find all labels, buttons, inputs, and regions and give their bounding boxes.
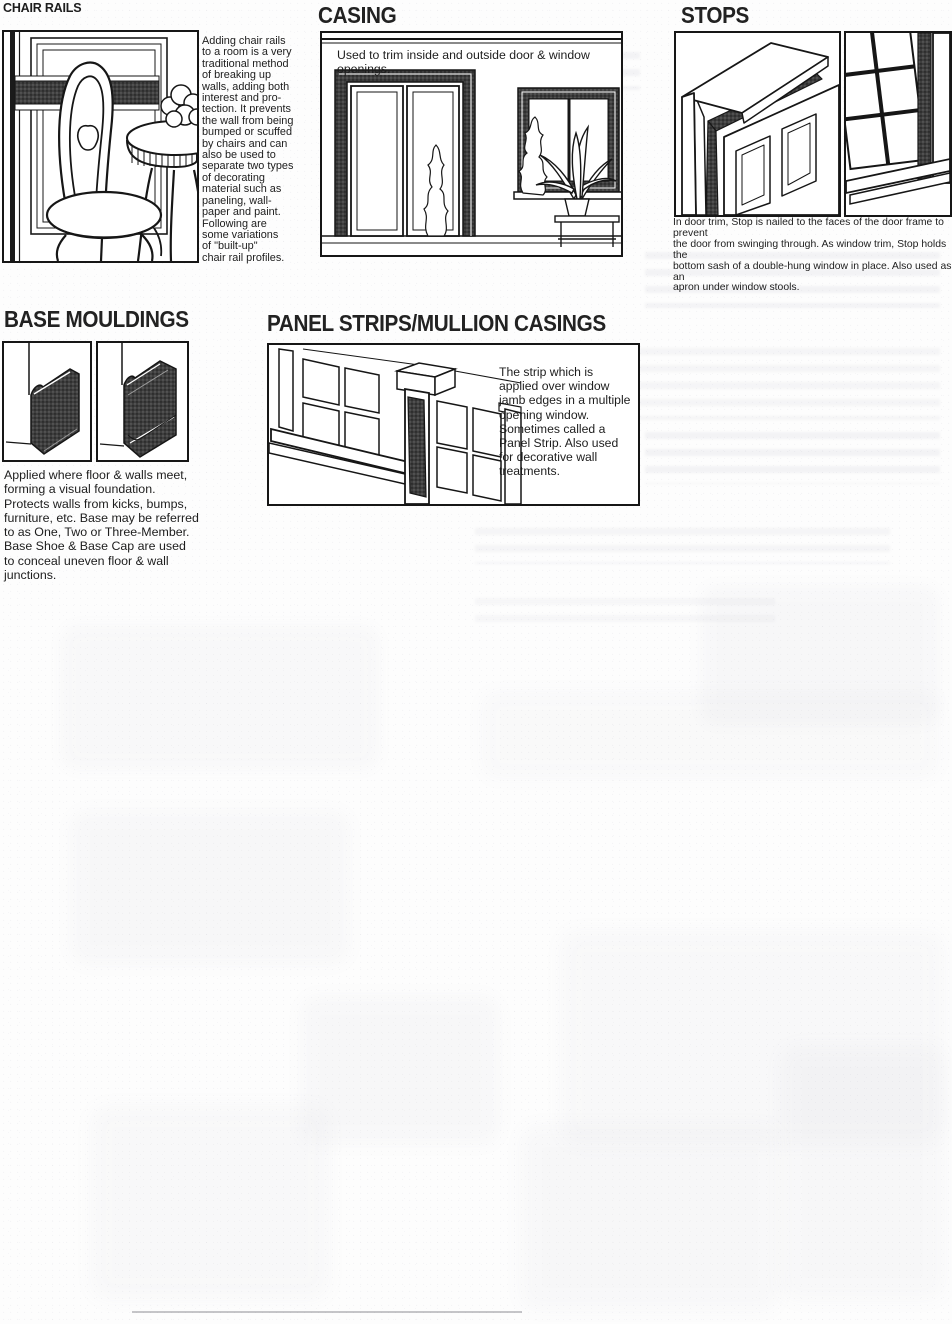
bleed-through-artifact [90,1105,330,1300]
casing-caption: Used to trim inside and outside door & w… [337,48,609,76]
panel-strips-title: PANEL STRIPS/MULLION CASINGS [267,310,606,337]
chair-rails-figure [2,30,199,263]
chair-rails-illustration [4,32,197,261]
base-moulding-right-illustration [98,343,187,460]
base-mouldings-body: Applied where floor & walls meet, formin… [4,468,246,582]
casing-title: CASING [318,2,396,29]
chair-rails-title: CHAIR RAILS [3,1,81,15]
panel-strips-body: The strip which is applied over window j… [499,365,635,479]
stops-window-illustration [846,33,950,215]
bleed-through-artifact [520,1125,780,1310]
chair-rails-body: Adding chair rails to a room is a very t… [202,36,318,264]
bleed-through-artifact [60,625,380,770]
bleed-through-artifact [300,995,500,1145]
scan-edge-artifact [132,1311,522,1313]
stops-door-illustration [676,33,839,215]
bleed-through-artifact [70,810,350,965]
base-moulding-left-figure [2,341,92,462]
stops-window-figure [844,31,952,217]
bleed-through-artifact [475,528,890,564]
base-mouldings-title: BASE MOULDINGS [4,306,189,333]
panel-strips-figure: The strip which is applied over window j… [267,343,640,506]
stops-title: STOPS [681,2,749,29]
base-moulding-right-figure [96,341,189,462]
stops-caption: In door trim, Stop is nailed to the face… [673,218,952,294]
scanned-document-page: CHAIR RAILS [0,0,952,1324]
stops-door-figure [674,31,841,217]
base-moulding-left-illustration [4,343,90,460]
bleed-through-artifact [645,432,940,484]
bleed-through-artifact [480,690,940,780]
bleed-through-artifact [780,1045,945,1300]
casing-figure: Used to trim inside and outside door & w… [320,31,623,257]
